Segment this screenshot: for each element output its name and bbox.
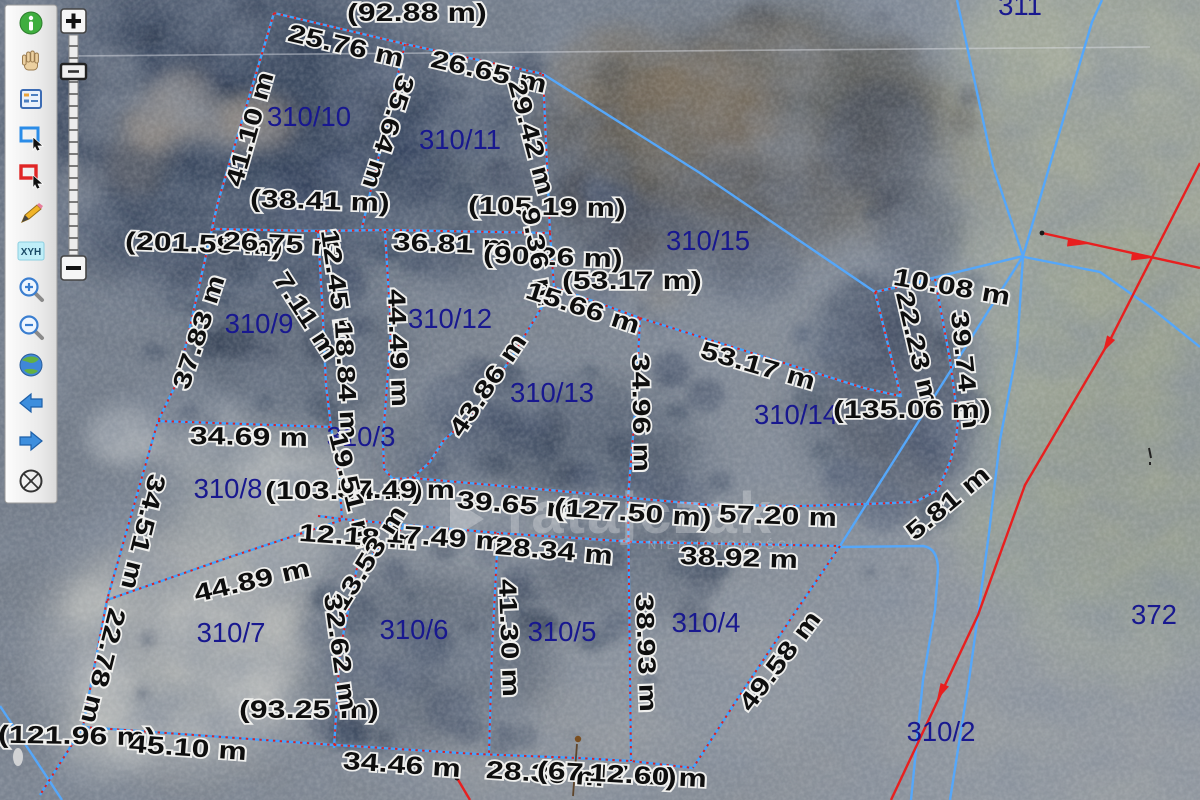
svg-text:310/6: 310/6 xyxy=(380,614,449,645)
svg-text:34.96 m: 34.96 m xyxy=(626,354,656,473)
svg-text:310/8: 310/8 xyxy=(194,473,263,504)
svg-text:(105.19 m): (105.19 m) xyxy=(468,192,626,223)
svg-text:(135.06 m): (135.06 m) xyxy=(833,396,991,424)
svg-text:310/2: 310/2 xyxy=(907,716,976,747)
svg-text:372: 372 xyxy=(1131,599,1177,630)
svg-text:310/13: 310/13 xyxy=(510,377,594,408)
svg-text:310/12: 310/12 xyxy=(408,303,492,334)
svg-text:44.49 m: 44.49 m xyxy=(382,288,414,407)
svg-text:310/7: 310/7 xyxy=(197,617,266,648)
svg-text:41.30 m: 41.30 m xyxy=(493,578,525,697)
svg-text:310/10: 310/10 xyxy=(267,101,351,132)
svg-text:(38.41 m): (38.41 m) xyxy=(250,185,391,218)
svg-text:34.69 m: 34.69 m xyxy=(190,422,309,452)
svg-text:38.92 m: 38.92 m xyxy=(679,542,798,574)
svg-text:310/4: 310/4 xyxy=(672,607,741,638)
svg-text:(53.17 m): (53.17 m) xyxy=(562,267,702,295)
svg-text:38.93 m: 38.93 m xyxy=(630,593,662,712)
svg-text:310/15: 310/15 xyxy=(666,225,750,256)
svg-text:57.20 m: 57.20 m xyxy=(718,500,837,532)
svg-text:XYH: XYH xyxy=(21,247,42,258)
svg-text:310/9: 310/9 xyxy=(225,308,294,339)
svg-text:(92.88 m): (92.88 m) xyxy=(347,0,487,27)
svg-text:311: 311 xyxy=(998,0,1042,21)
svg-text:310/11: 310/11 xyxy=(419,124,501,155)
svg-text:310/14: 310/14 xyxy=(754,399,838,430)
svg-text:310/5: 310/5 xyxy=(528,616,597,647)
